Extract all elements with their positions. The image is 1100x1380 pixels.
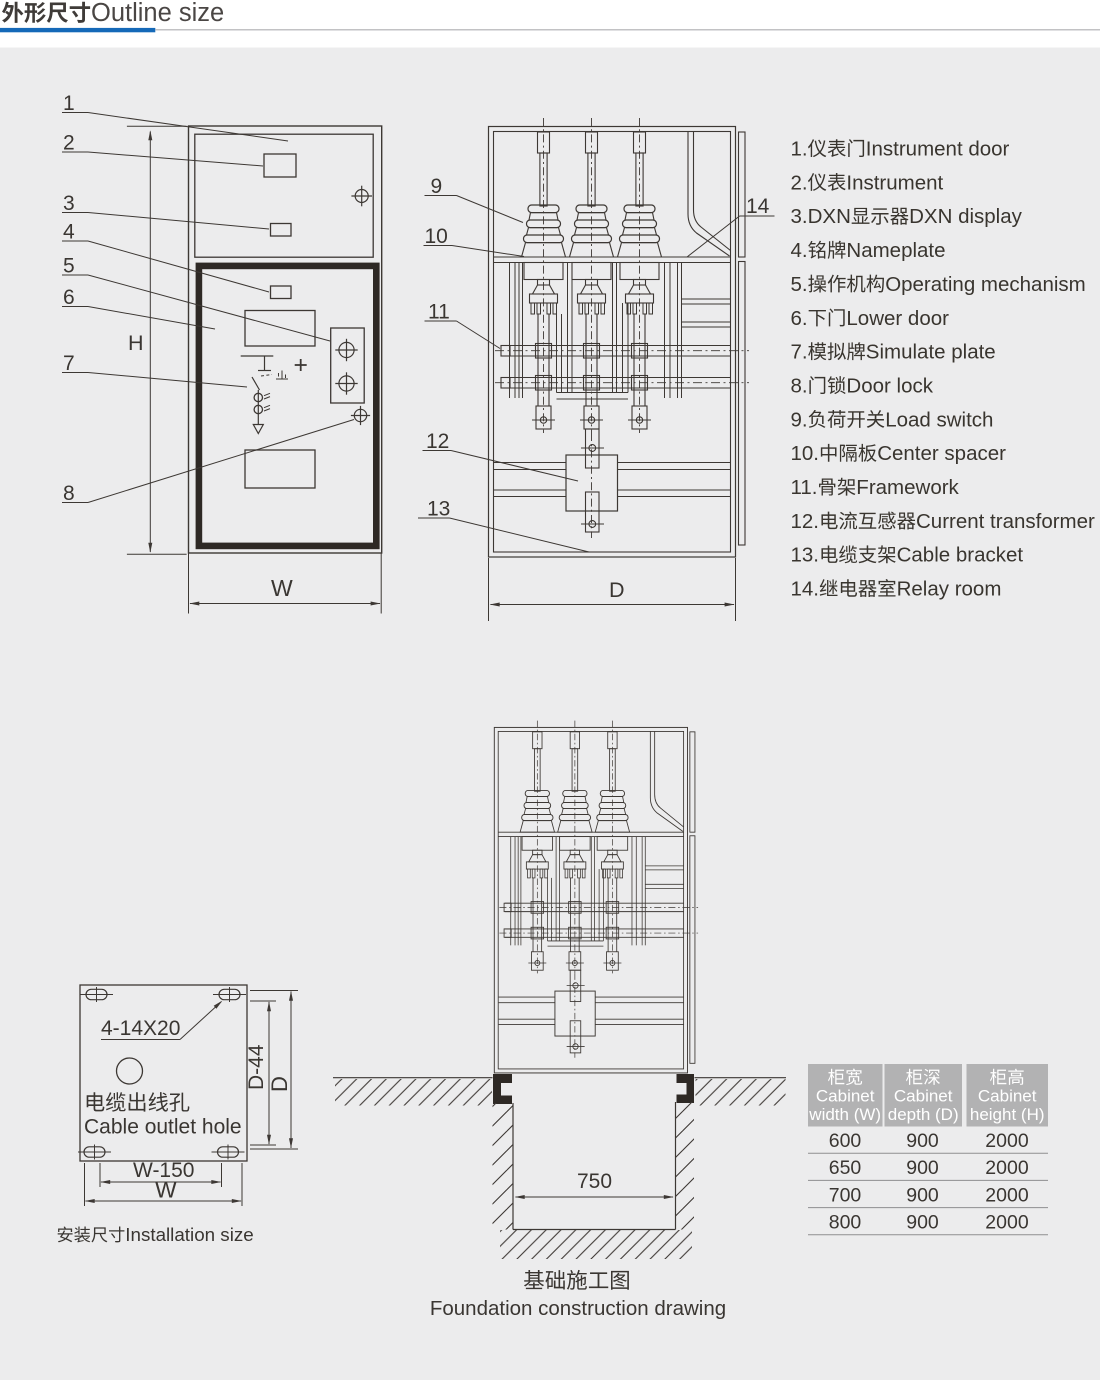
- svg-text:Operating mechanism: Operating mechanism: [885, 273, 1086, 296]
- svg-text:13.: 13.: [791, 544, 820, 567]
- svg-text:Cabinet: Cabinet: [816, 1087, 875, 1106]
- svg-text:DXN display: DXN display: [909, 205, 1023, 228]
- svg-text:2000: 2000: [985, 1184, 1029, 1206]
- svg-text:Cable outlet hole: Cable outlet hole: [84, 1116, 242, 1139]
- svg-text:Load switch: Load switch: [885, 408, 993, 431]
- svg-text:Installation size: Installation size: [125, 1224, 253, 1245]
- svg-text:8.: 8.: [791, 375, 808, 398]
- svg-text:height (H): height (H): [970, 1105, 1045, 1124]
- svg-text:D: D: [609, 578, 625, 602]
- svg-text:Cable bracket: Cable bracket: [897, 544, 1024, 567]
- svg-text:2000: 2000: [985, 1130, 1029, 1152]
- svg-text:Foundation construction drawin: Foundation construction drawing: [430, 1297, 726, 1320]
- svg-text:6.: 6.: [791, 307, 808, 330]
- svg-text:9.: 9.: [791, 408, 808, 431]
- svg-text:14: 14: [746, 195, 770, 218]
- svg-text:9: 9: [431, 175, 443, 198]
- svg-text:7: 7: [63, 352, 75, 375]
- svg-text:700: 700: [829, 1184, 862, 1206]
- svg-text:depth (D): depth (D): [888, 1105, 959, 1124]
- svg-text:10.: 10.: [791, 442, 820, 465]
- svg-text:5.: 5.: [791, 273, 808, 296]
- svg-text:800: 800: [829, 1212, 862, 1234]
- svg-text:width (W): width (W): [808, 1105, 881, 1124]
- svg-text:14.: 14.: [791, 578, 820, 601]
- svg-text:6: 6: [63, 286, 75, 309]
- svg-text:11.: 11.: [791, 476, 818, 499]
- svg-text:Cabinet: Cabinet: [978, 1087, 1037, 1106]
- svg-text:W: W: [271, 575, 293, 601]
- svg-text:Relay room: Relay room: [897, 578, 1002, 601]
- svg-text:4.: 4.: [791, 239, 808, 262]
- svg-text:Instrument door: Instrument door: [866, 138, 1010, 161]
- svg-text:Outline size: Outline size: [91, 0, 224, 27]
- svg-text:13: 13: [427, 498, 450, 521]
- svg-text:10: 10: [425, 225, 448, 248]
- svg-text:900: 900: [906, 1157, 939, 1179]
- svg-text:2.: 2.: [791, 171, 808, 194]
- svg-text:Center spacer: Center spacer: [877, 442, 1006, 465]
- svg-text:3: 3: [63, 192, 75, 215]
- svg-text:Door lock: Door lock: [846, 375, 933, 398]
- svg-text:900: 900: [906, 1184, 939, 1206]
- svg-text:2: 2: [63, 132, 75, 155]
- svg-text:600: 600: [829, 1130, 862, 1152]
- svg-text:W: W: [155, 1177, 177, 1203]
- svg-text:Lower door: Lower door: [846, 307, 949, 330]
- svg-text:Current transformer: Current transformer: [916, 510, 1095, 533]
- svg-text:4: 4: [63, 221, 75, 244]
- svg-text:Framework: Framework: [856, 476, 959, 499]
- svg-text:2000: 2000: [985, 1212, 1029, 1234]
- svg-text:7.: 7.: [791, 341, 808, 364]
- svg-text:5: 5: [63, 255, 75, 278]
- svg-text:D-44: D-44: [245, 1044, 268, 1090]
- svg-text:12: 12: [426, 430, 449, 453]
- svg-text:650: 650: [829, 1157, 862, 1179]
- svg-text:3.DXN: 3.DXN: [791, 205, 851, 228]
- svg-text:900: 900: [906, 1130, 939, 1152]
- svg-text:750: 750: [577, 1170, 612, 1193]
- svg-text:900: 900: [906, 1212, 939, 1234]
- svg-text:8: 8: [63, 482, 75, 505]
- svg-text:H: H: [128, 331, 144, 355]
- svg-text:Simulate plate: Simulate plate: [866, 341, 996, 364]
- svg-text:2000: 2000: [985, 1157, 1029, 1179]
- svg-text:12.: 12.: [791, 510, 820, 533]
- svg-text:11: 11: [428, 301, 450, 324]
- svg-text:Instrument: Instrument: [846, 171, 943, 194]
- svg-text:1: 1: [63, 92, 75, 115]
- svg-text:Nameplate: Nameplate: [846, 239, 945, 262]
- svg-text:4-14X20: 4-14X20: [101, 1017, 180, 1040]
- svg-text:1.: 1.: [791, 138, 808, 161]
- svg-text:Cabinet: Cabinet: [894, 1087, 953, 1106]
- svg-text:D: D: [267, 1076, 292, 1092]
